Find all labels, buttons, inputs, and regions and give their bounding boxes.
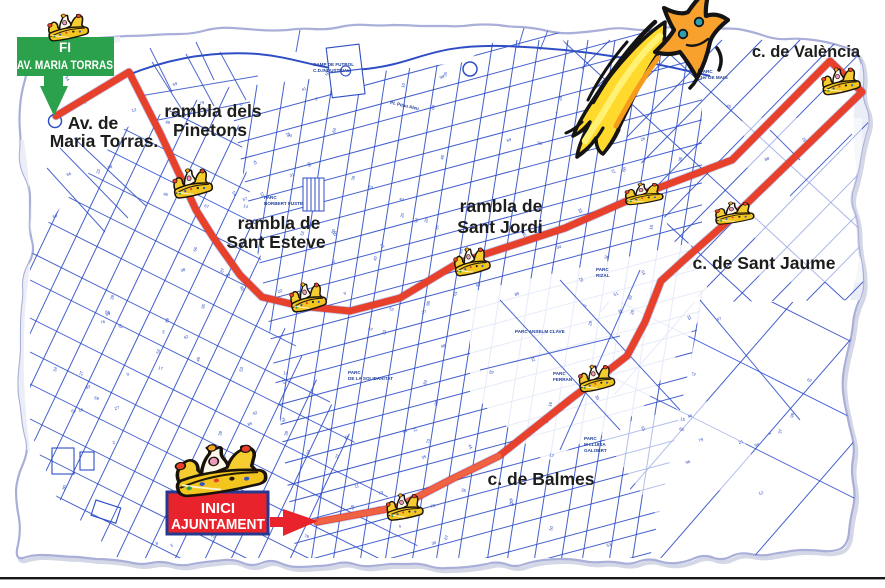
svg-text:c. de Sant Jaume: c. de Sant Jaume — [693, 253, 836, 273]
svg-text:Pinetons: Pinetons — [173, 120, 247, 140]
svg-text:C.D.INDUSTRIAL: C.D.INDUSTRIAL — [313, 68, 350, 73]
svg-text:NORBERT FUSTE: NORBERT FUSTE — [264, 201, 303, 206]
svg-text:Sant Esteve: Sant Esteve — [226, 232, 325, 252]
svg-text:FERRAN: FERRAN — [553, 377, 573, 382]
svg-text:c. de València: c. de València — [752, 43, 861, 61]
svg-text:PARC: PARC — [553, 371, 566, 376]
svg-text:INICI: INICI — [201, 500, 235, 517]
svg-text:Sant Jordi: Sant Jordi — [457, 217, 543, 237]
svg-text:FI: FI — [59, 40, 71, 55]
svg-text:GALOBRT: GALOBRT — [584, 448, 607, 453]
svg-text:rambla de: rambla de — [460, 196, 543, 216]
svg-text:c. de Balmes: c. de Balmes — [488, 469, 595, 489]
svg-text:M LLUISA: M LLUISA — [584, 442, 606, 447]
svg-text:PARC: PARC — [596, 267, 609, 272]
svg-text:PARC ANSELM CLAVE: PARC ANSELM CLAVE — [515, 329, 565, 334]
svg-text:PARC: PARC — [584, 436, 597, 441]
svg-text:rambla dels: rambla dels — [164, 101, 262, 121]
svg-text:CAMP DE FUTBOL: CAMP DE FUTBOL — [313, 62, 354, 67]
svg-text:RIZAL: RIZAL — [596, 273, 610, 278]
svg-text:rambla de: rambla de — [238, 213, 321, 233]
svg-text:AJUNTAMENT: AJUNTAMENT — [171, 516, 265, 532]
svg-text:PARC: PARC — [348, 370, 361, 375]
svg-text:AV. MARIA TORRAS: AV. MARIA TORRAS — [17, 59, 113, 72]
svg-text:Av. de: Av. de — [68, 113, 119, 133]
svg-text:DE LA SOLIDARITAT: DE LA SOLIDARITAT — [348, 376, 393, 381]
svg-text:1er DE MAIG: 1er DE MAIG — [700, 75, 728, 80]
svg-text:Maria Torras.: Maria Torras. — [50, 131, 159, 151]
svg-text:PARC: PARC — [264, 195, 277, 200]
